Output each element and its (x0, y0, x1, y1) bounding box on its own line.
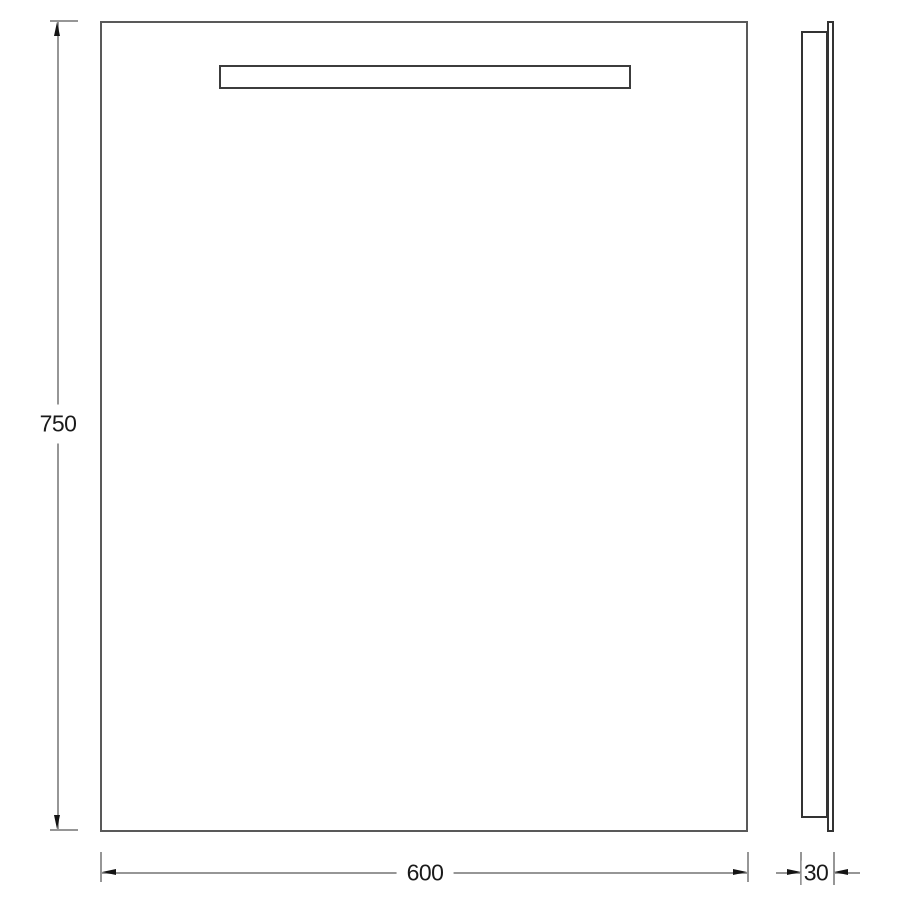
arrow-right-icon (733, 869, 747, 875)
height-dimension-label: 750 (37, 405, 80, 444)
depth-dimension-label: 30 (802, 861, 831, 886)
mirror-front-view-outline (100, 21, 748, 832)
width-dimension-right-extension (747, 852, 749, 882)
mirror-technical-drawing: 750 600 30 (0, 0, 900, 900)
arrow-left-icon (102, 869, 116, 875)
mirror-side-profile-glass (827, 21, 834, 832)
height-dimension-bottom-tick (50, 829, 78, 831)
arrow-down-icon (54, 815, 60, 829)
mirror-side-profile-body (801, 31, 828, 818)
width-dimension-label: 600 (397, 861, 454, 886)
width-dimension-left-extension (100, 852, 102, 882)
arrow-up-icon (54, 22, 60, 36)
led-light-strip (219, 65, 631, 89)
arrow-left-icon (834, 869, 848, 875)
arrow-right-icon (787, 869, 801, 875)
